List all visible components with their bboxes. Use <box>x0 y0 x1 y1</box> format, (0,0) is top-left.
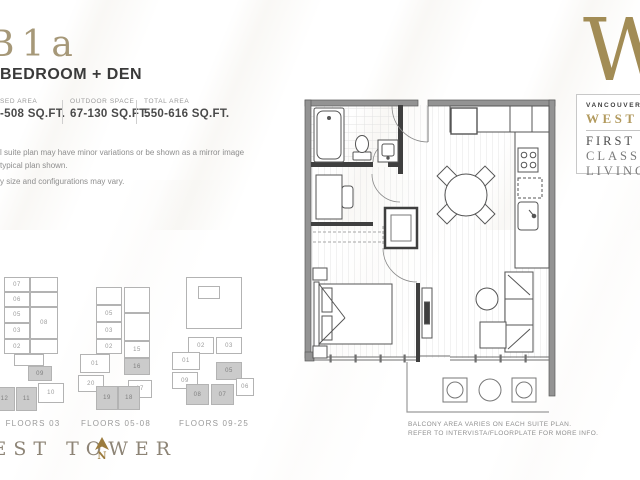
dining-set <box>437 166 495 224</box>
keyplan-unit: 15 <box>124 341 150 358</box>
brand-west: WEST <box>586 111 640 127</box>
keyplan-label: FLOORS 03 <box>6 419 61 428</box>
keyplan-unit <box>198 286 220 299</box>
keyplan-unit: 03 <box>4 323 30 339</box>
balcony-table <box>479 379 501 401</box>
ottoman <box>480 322 506 348</box>
keyplan-unit <box>30 339 58 354</box>
keyplan-unit: 08 <box>186 384 209 405</box>
sofa <box>505 272 533 352</box>
balcony <box>407 362 549 412</box>
stat-enclosed-area: SED AREA -508 SQ.FT. <box>0 98 65 120</box>
keyplan-unit: 12 <box>0 387 15 411</box>
disclaimer-line: typical plan shown. <box>0 159 250 172</box>
keyplan-unit: 11 <box>16 387 37 411</box>
area-stats: SED AREA -508 SQ.FT. OUTDOOR SPACE 67-13… <box>0 98 300 128</box>
keyplan-label: FLOORS 05-08 <box>81 419 151 428</box>
keyplan-unit: 06 <box>4 292 30 307</box>
keyplan-unit <box>124 313 150 341</box>
disclaimer-line: l suite plan may have minor variations o… <box>0 146 250 159</box>
keyplan-unit: 06 <box>236 378 254 396</box>
stat-value: 550-616 SQ.FT. <box>144 108 229 120</box>
brand-class: CLASS <box>586 149 640 164</box>
tv-console <box>422 288 432 338</box>
keyplan-unit <box>30 292 58 307</box>
cooktop <box>518 148 538 172</box>
keyplan-unit: 19 <box>96 386 118 410</box>
keyplan-unit: 07 <box>211 384 234 405</box>
keyplan-unit: 17 <box>128 380 152 398</box>
keyplan-unit: 05 <box>216 362 242 380</box>
plan-code: B1a <box>0 24 80 65</box>
keyplan-unit <box>124 287 150 313</box>
keyplan-unit: 05 <box>96 305 122 322</box>
keyplan-unit <box>30 277 58 292</box>
north-arrow: N <box>94 437 110 465</box>
north-label: N <box>94 452 110 462</box>
keyplan-unit: 05 <box>4 307 30 323</box>
stat-divider <box>62 100 63 124</box>
keyplan-unit: 08 <box>30 307 58 339</box>
brand-box: VANCOUVER WEST FIRST CLASS LIVING <box>576 94 640 174</box>
balcony-note: BALCONY AREA VARIES ON EACH SUITE PLAN. … <box>408 420 598 438</box>
stat-divider <box>136 100 137 124</box>
keyplan-unit: 03 <box>96 322 122 339</box>
coffee-table <box>476 288 498 310</box>
keyplan-label: FLOORS 09-25 <box>179 419 249 428</box>
disclaimer-line: y size and configurations may vary. <box>0 175 250 188</box>
toilet-tank <box>353 152 371 160</box>
dishwasher <box>518 178 542 198</box>
balcony-note-line: BALCONY AREA VARIES ON EACH SUITE PLAN. <box>408 420 598 429</box>
brand-city: VANCOUVER <box>586 102 640 109</box>
balcony-note-line: REFER TO INTERVISTA/FLOORPLATE FOR MORE … <box>408 429 598 438</box>
keyplan-unit <box>96 287 122 305</box>
keyplan-unit: 02 <box>96 339 122 354</box>
keyplan-unit: 10 <box>38 383 64 403</box>
north-arrow-icon <box>94 437 110 452</box>
keyplan-unit <box>186 277 242 329</box>
keyplan-unit: 09 <box>172 372 198 389</box>
keyplan-unit <box>14 354 44 366</box>
stat-label: TOTAL AREA <box>144 98 229 105</box>
plan-title: BEDROOM + DEN <box>0 66 142 84</box>
keyplan-unit: 07 <box>4 277 30 292</box>
dining-table <box>445 174 487 216</box>
brand-first: FIRST <box>586 134 640 149</box>
keyplan-unit: 02 <box>188 337 214 354</box>
keyplan-unit: 09 <box>28 366 52 381</box>
keyplan-unit: 01 <box>80 354 110 373</box>
sink <box>382 144 394 156</box>
keyplan-unit: 03 <box>216 337 242 354</box>
fridge <box>451 108 477 134</box>
stat-value: -508 SQ.FT. <box>0 108 65 120</box>
stat-label: SED AREA <box>0 98 65 105</box>
keyplan-unit: 20 <box>78 375 104 392</box>
stat-total-area: TOTAL AREA 550-616 SQ.FT. <box>144 98 229 120</box>
entry-closet <box>385 208 417 248</box>
keyplan-unit: 18 <box>118 386 140 410</box>
brand-divider <box>586 130 640 131</box>
keyplan-unit: 01 <box>172 352 200 370</box>
brand-living: LIVING <box>586 164 640 179</box>
tower-name: WEST TOWER <box>0 438 177 460</box>
keyplan-unit: 02 <box>4 339 30 354</box>
disclaimer: l suite plan may have minor variations o… <box>0 146 250 188</box>
w-logo: W <box>583 8 640 94</box>
toilet-bowl <box>356 136 369 153</box>
keyplan-unit: 16 <box>124 358 150 375</box>
floorplan-svg <box>300 92 560 432</box>
